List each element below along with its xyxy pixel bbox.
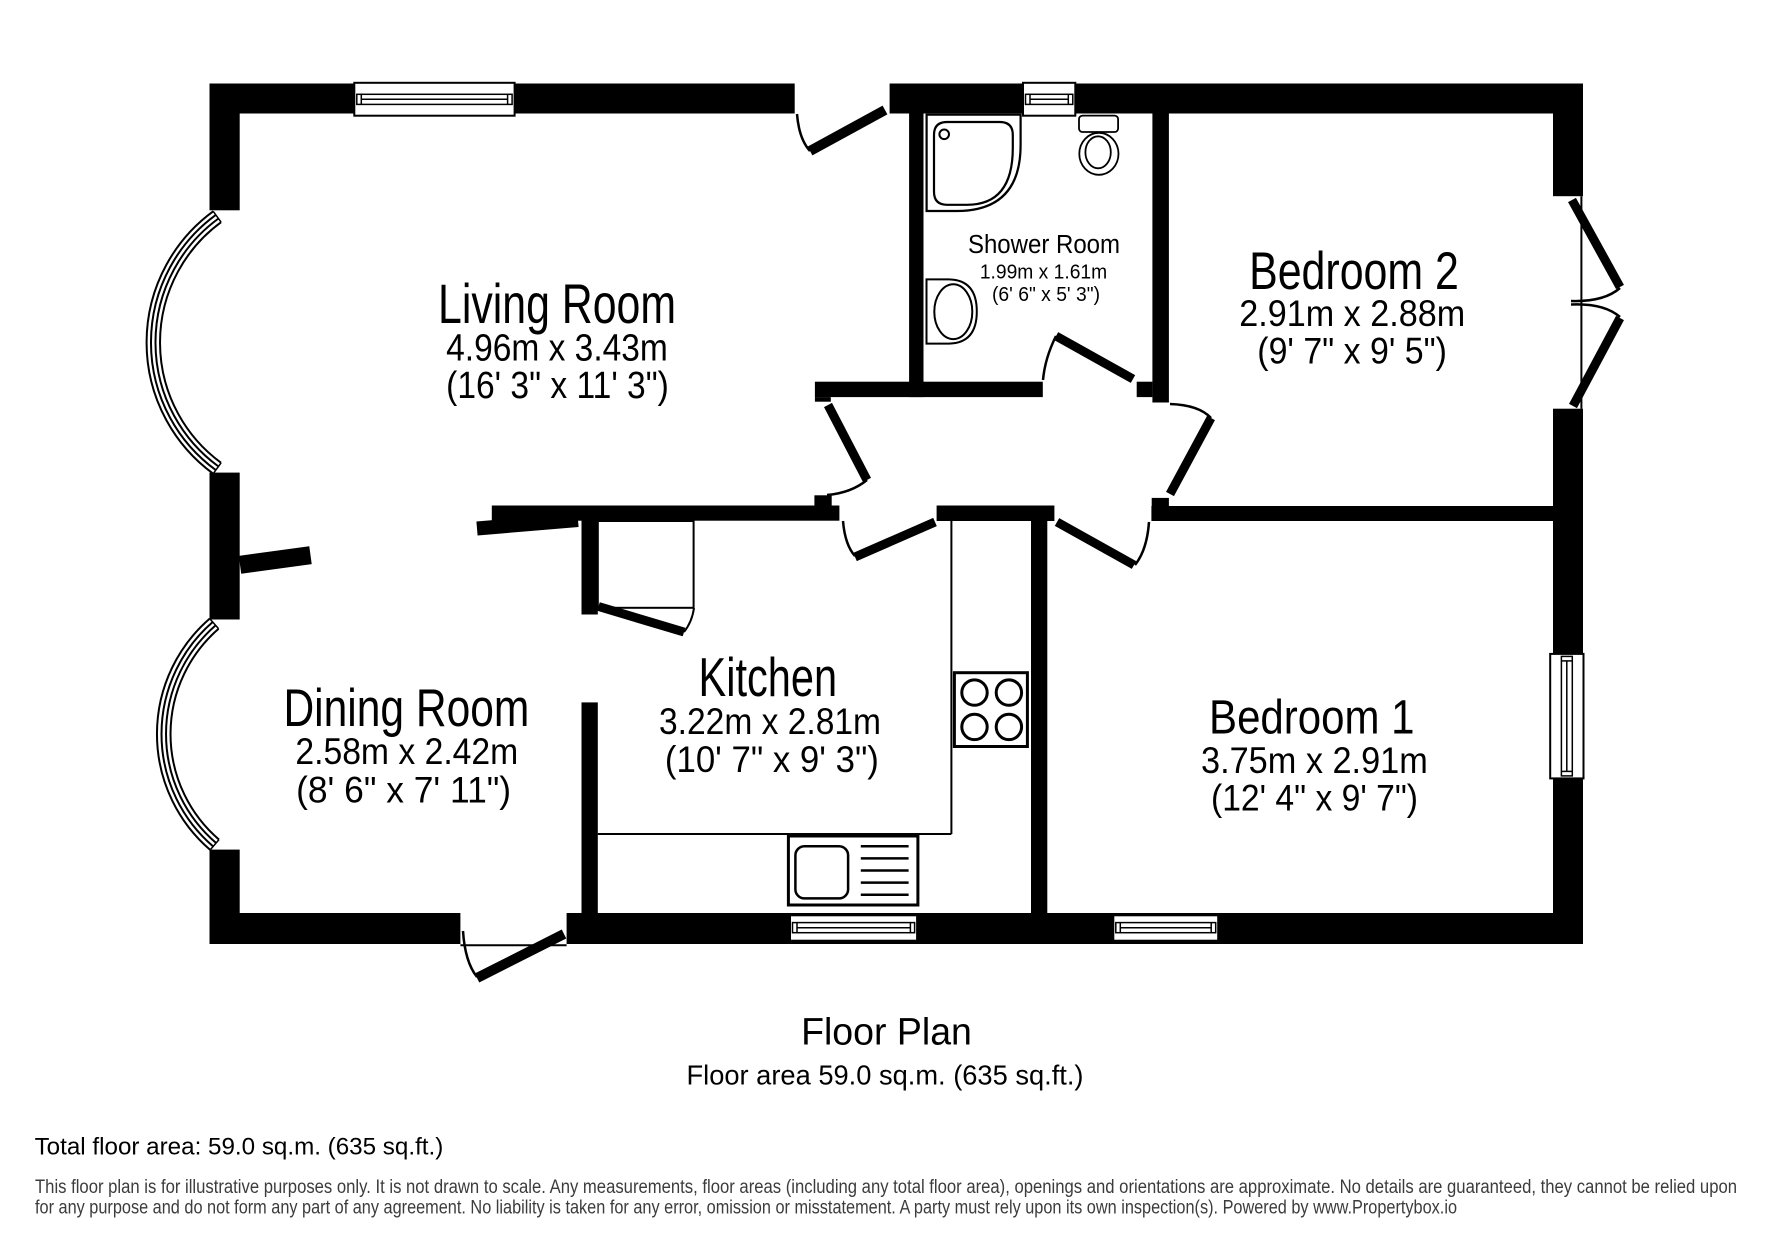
svg-text:(10' 7" x 9' 3"): (10' 7" x 9' 3") xyxy=(665,739,879,780)
svg-text:Floor area 59.0 sq.m. (635 sq.: Floor area 59.0 sq.m. (635 sq.ft.) xyxy=(687,1059,1084,1090)
svg-text:4.96m x 3.43m: 4.96m x 3.43m xyxy=(446,326,668,368)
svg-text:(8' 6" x 7' 11"): (8' 6" x 7' 11") xyxy=(296,770,511,811)
svg-text:Bedroom 1: Bedroom 1 xyxy=(1209,692,1415,745)
svg-text:for any purpose and do not for: for any purpose and do not form any part… xyxy=(35,1198,1457,1219)
svg-text:Floor Plan: Floor Plan xyxy=(801,1011,972,1054)
svg-text:This floor plan is for illustr: This floor plan is for illustrative purp… xyxy=(35,1177,1737,1198)
svg-text:3.75m x 2.91m: 3.75m x 2.91m xyxy=(1201,740,1428,781)
svg-text:Shower Room: Shower Room xyxy=(968,229,1120,259)
svg-text:(9' 7" x 9' 5"): (9' 7" x 9' 5") xyxy=(1257,330,1447,371)
svg-text:(12' 4" x 9' 7"): (12' 4" x 9' 7") xyxy=(1211,778,1418,819)
svg-text:Dining Room: Dining Room xyxy=(283,679,529,738)
svg-text:1.99m x 1.61m: 1.99m x 1.61m xyxy=(980,261,1107,283)
svg-text:2.91m x 2.88m: 2.91m x 2.88m xyxy=(1239,293,1465,334)
svg-text:2.58m x 2.42m: 2.58m x 2.42m xyxy=(295,731,518,772)
svg-text:3.22m x 2.81m: 3.22m x 2.81m xyxy=(659,701,881,742)
svg-text:Kitchen: Kitchen xyxy=(699,646,838,708)
svg-text:(16' 3" x 11' 3"): (16' 3" x 11' 3") xyxy=(446,364,669,406)
svg-text:Total floor area: 59.0 sq.m. (: Total floor area: 59.0 sq.m. (635 sq.ft.… xyxy=(35,1133,444,1160)
svg-text:(6' 6" x 5' 3"): (6' 6" x 5' 3") xyxy=(992,284,1100,306)
